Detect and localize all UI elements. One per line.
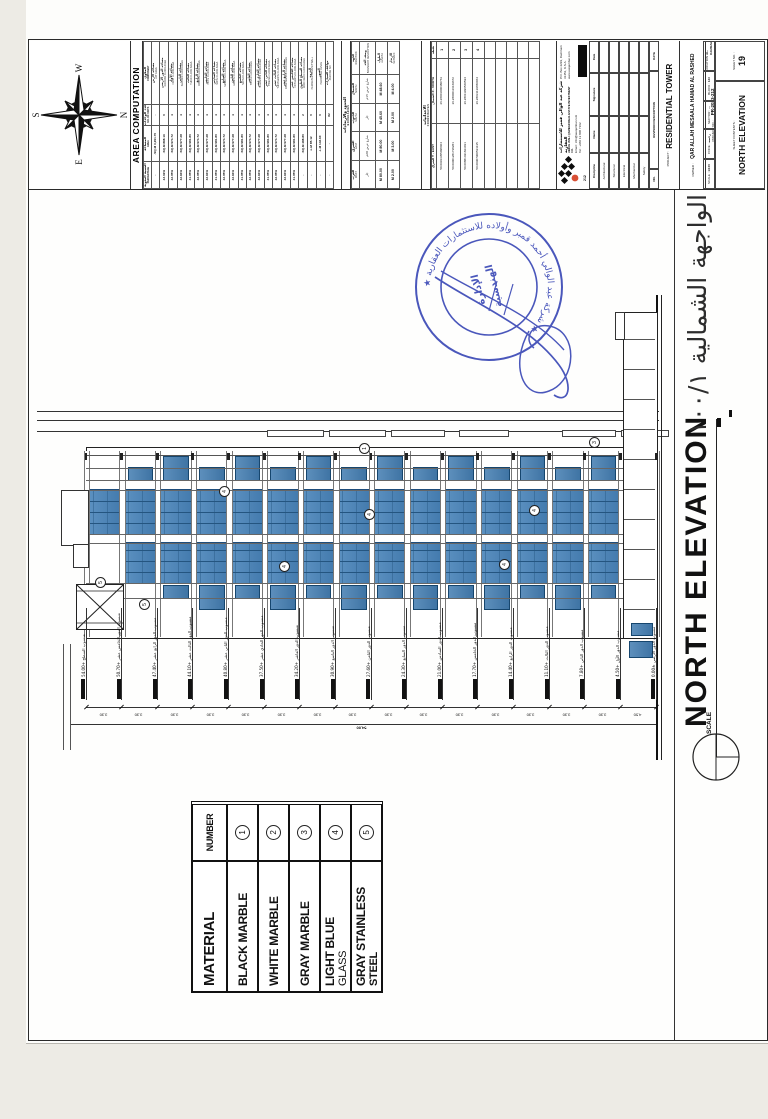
sheet-title: NORTH ELEVATION xyxy=(737,95,747,175)
slab-end-mark xyxy=(156,453,159,460)
entrance-glass xyxy=(629,641,653,658)
window-strip xyxy=(591,585,617,599)
slab-end-mark xyxy=(263,453,266,460)
area-table-row: مساحة الرابع عشرFOURTEENTH FLOOR AREA497… xyxy=(282,42,291,189)
signoff-empty-cell xyxy=(619,116,629,153)
slab-end-mark xyxy=(405,453,408,460)
signoff-row-label: Safety xyxy=(639,153,649,189)
window-strip xyxy=(448,585,474,599)
boundary-table-title: الحدود والارتدادات BOUNDARIES xyxy=(341,41,351,189)
company-name-arabic: شركة عبد الوالي قمبر للاستثمارات العقاري… xyxy=(558,81,568,153)
level-extension-line xyxy=(335,608,336,700)
floor-dimension: 3.30 xyxy=(274,713,288,718)
level-marker xyxy=(224,679,228,699)
sheet-no: 19 xyxy=(737,56,747,66)
window-strip xyxy=(270,467,296,481)
glass-module xyxy=(374,489,406,535)
slab-end-mark xyxy=(583,453,586,460)
area-table-row: مساحة الدور الأرضيGROUND FLOOR AREA0898.… xyxy=(160,42,169,189)
material-tag: 4 xyxy=(219,486,230,497)
floor-dimension: 3.30 xyxy=(168,713,182,718)
glass-module xyxy=(374,542,406,584)
level-annotation: منسوب الدور السابع +24.30 xyxy=(401,607,406,677)
fence-segment xyxy=(562,431,616,438)
signoff-empty-cell xyxy=(599,116,609,153)
floor-dimension: 3.30 xyxy=(239,713,253,718)
glass-module xyxy=(196,542,228,584)
company-header: 212 شركة عبد الوالي قمبر للاستثمارات الع… xyxy=(556,41,590,189)
level-marker xyxy=(331,679,335,699)
signoff-header: Discipline xyxy=(589,153,599,189)
coords-row: 126.2800100048076150.09913355098404 xyxy=(436,42,448,189)
podium xyxy=(623,312,658,639)
location-label: LOCATION : xyxy=(705,56,713,71)
project-name: RESIDENTIAL TOWER xyxy=(665,64,674,149)
slab-end-mark xyxy=(476,453,479,460)
contents-row: SHEET CONTENTS : NORTH ELEVATION SHEET N… xyxy=(715,41,765,189)
level-extension-line xyxy=(264,608,265,700)
area-table-row: مساحة الخامس عشرFIFTEENTH FLOOR AREA4981… xyxy=(290,42,299,189)
podium-division xyxy=(624,579,655,580)
company-logo-number: 212 xyxy=(583,175,587,181)
signoff-empty-cell xyxy=(639,116,649,153)
scale-label: SCALE : xyxy=(707,172,711,184)
roof-parapet xyxy=(61,490,89,546)
compass-letter-left: E xyxy=(74,159,84,165)
compass-rose-icon: S N E W xyxy=(29,41,130,189)
slab-end-mark xyxy=(298,453,301,460)
window-strip xyxy=(341,467,367,481)
area-table-row: الدروةPERIMETER PARAPET WALL085.12 L.M.- xyxy=(308,42,317,189)
dim-extension-line xyxy=(70,644,71,750)
floor-dimension: 3.30 xyxy=(132,713,146,718)
compass-cell: S N E W xyxy=(29,41,131,189)
level-extension-line xyxy=(228,608,229,700)
signoff-header: Name xyxy=(589,116,599,153)
window-strip xyxy=(235,585,261,599)
area-table-row: مساحة الثاني عشرTWELVE FLOOR AREA4981.80… xyxy=(264,42,273,189)
level-extension-line xyxy=(442,608,443,700)
glass-module xyxy=(89,489,121,535)
slab-end-mark xyxy=(85,453,88,460)
area-table-row: مساحة الأرضLOT AREA-3,291.70 SQ.M.- xyxy=(151,42,160,189)
window-strip xyxy=(413,467,439,481)
owner-name: QAR ALLAH MESAALA HAMAD AL RASHED xyxy=(690,53,696,158)
level-extension-line xyxy=(192,608,193,700)
total-dimension: 54.00 xyxy=(353,726,371,731)
boundary-dir-row: الجهةDIRECTIONالشمالNORTHالجنوبSOUTHالشر… xyxy=(352,42,360,189)
area-table-row: مساحة الحادي عشرELEVENTH FLOOR AREA4977.… xyxy=(256,42,265,189)
glass-module xyxy=(445,489,477,535)
signoff-empty-cell xyxy=(609,41,619,73)
floor-dimension: 4.50 xyxy=(631,713,645,718)
level-marker xyxy=(438,679,442,699)
drawing-title-box: SCALE NORTH ELEVATION الواجهة الشمالية ١… xyxy=(674,190,766,1040)
slab-end-mark xyxy=(512,453,515,460)
revision-bar: NO.REVISION DESCRIPTIONDATE xyxy=(649,41,659,189)
signoff-empty-cell xyxy=(639,73,649,116)
area-table-row: مساحة الثالث عشرTHIRTEENTH FLOOR AREA497… xyxy=(273,42,282,189)
slab-end-mark xyxy=(191,453,194,460)
area-table-row: مساحة العاشرTENTH FLOOR AREA4974.72 SQ.M… xyxy=(247,42,256,189)
area-table: المكونCOMPONENTعدد الوحداتNO. OF UNITSال… xyxy=(143,41,334,189)
level-annotation: منسوب الدور الثالث عشر +44.10 xyxy=(187,607,192,677)
area-table-row: مساحة السطح العلويROOF DECK FLOOR AREA24… xyxy=(299,42,308,189)
glass-module xyxy=(160,489,192,535)
signoff-empty-cell xyxy=(599,73,609,116)
signoff-empty-cell xyxy=(619,41,629,73)
coordinates-table: الاحداثيات COORDINATES نقطةX - NORTH الش… xyxy=(421,41,557,189)
slab-end-mark xyxy=(334,453,337,460)
level-marker xyxy=(402,679,406,699)
elevation-title-arabic: الواجهة الشمالية ١٠٠/١ xyxy=(683,194,712,412)
location-value: AL-DAMMAM xyxy=(705,41,713,55)
material-tag: 4 xyxy=(364,509,375,520)
level-annotation: منسوب الدور الثالث +11.10 xyxy=(544,607,549,677)
signoff-empty-cell xyxy=(629,41,639,73)
area-table-row: مساحة السابعSEVENTH FLOOR AREA4974.72 SQ… xyxy=(221,42,230,189)
company-tel: Tel : +966 13 808 7162 xyxy=(579,81,583,153)
level-annotation: منسوب الدور الثاني +7.80 xyxy=(579,607,584,677)
fence-segment xyxy=(267,431,324,438)
glass-module xyxy=(160,542,192,584)
glass-module xyxy=(267,489,299,535)
signoff-empty-cell xyxy=(639,41,649,73)
level-extension-line xyxy=(299,608,300,700)
level-annotation: منسوب الدور الأرضي ±0.00 xyxy=(651,607,656,677)
level-marker xyxy=(260,679,264,699)
floor-dimension: 3.30 xyxy=(559,713,573,718)
level-marker xyxy=(81,679,85,699)
area-table-row: السورPERIMETER FENCE0146.60 L.M.- xyxy=(316,42,325,189)
glass-module xyxy=(410,542,442,584)
glass-module xyxy=(303,542,335,584)
scanned-drawing-page: { "compass": {"top":"S","bottom":"N","le… xyxy=(0,0,768,1119)
revision-bar-cell: REVISION DESCRIPTION xyxy=(649,71,659,169)
boundary-table-grid: الجهةDIRECTIONالشمالNORTHالجنوبSOUTHالشر… xyxy=(351,41,400,189)
level-extension-line xyxy=(513,608,514,700)
level-marker xyxy=(545,679,549,699)
floor-dimension: 3.30 xyxy=(96,713,110,718)
compass-letter-right: W xyxy=(74,63,84,72)
floor-dimension: 3.30 xyxy=(346,713,360,718)
area-table-title: AREA COMPUTATION xyxy=(130,41,143,189)
slab-end-mark xyxy=(120,453,123,460)
area-table-row: مساحة الخامسFIFTH FLOOR AREA4977.28 SQ.M… xyxy=(203,42,212,189)
level-annotation: منسوب الدور الرابع +14.40 xyxy=(508,607,513,677)
level-marker xyxy=(366,679,370,699)
level-extension-line xyxy=(157,608,158,700)
level-marker xyxy=(509,679,513,699)
floor-dimension: 3.30 xyxy=(417,713,431,718)
boundary-length-row: الطولLENGTH48.60 M45.60 M80.00 M80.00 M xyxy=(375,42,387,189)
facade-edge-line xyxy=(86,583,623,584)
area-computation-table: AREA COMPUTATION المكونCOMPONENTعدد الوح… xyxy=(130,41,342,189)
area-table-row: مساحة التاسعNINTH FLOOR AREA4981.80 SQ.M… xyxy=(238,42,247,189)
level-extension-line xyxy=(549,608,550,700)
level-extension-line xyxy=(121,608,122,700)
glass-module xyxy=(445,542,477,584)
slab-end-mark xyxy=(227,453,230,460)
level-marker xyxy=(153,679,157,699)
level-annotation: منسوب الدور الثاني عشر +40.80 xyxy=(223,607,228,677)
glass-module xyxy=(481,489,513,535)
area-table-row: مساحة الأولFIRST FLOOR AREA4974.72 SQ.M.… xyxy=(169,42,178,189)
area-table-row: مساحة الثالثTHIRD FLOOR AREA4981.80 SQ.M… xyxy=(186,42,195,189)
level-extension-line xyxy=(371,608,372,700)
signoff-empty-cell xyxy=(599,41,609,73)
level-annotation: منسوب الدور السادس +21.00 xyxy=(437,607,442,677)
material-tag: 1 xyxy=(359,443,370,454)
slab-end-mark xyxy=(370,453,373,460)
sector-value: --- xyxy=(707,106,711,109)
window-strip xyxy=(128,467,154,481)
level-marker xyxy=(295,679,299,699)
coords-table-grid: نقطةX - NORTH الشمالY - EAST الشرق126.28… xyxy=(431,41,540,189)
level-marker xyxy=(616,679,620,699)
level-extension-line xyxy=(477,608,478,700)
slab-end-mark xyxy=(441,453,444,460)
project-row: PROJECT : RESIDENTIAL TOWER xyxy=(659,41,680,189)
level-marker xyxy=(117,679,121,699)
podium-division xyxy=(624,549,655,550)
facade-edge-line xyxy=(86,468,623,469)
signoff-row-label: Electrical xyxy=(619,153,629,189)
level-annotation: منسوب الدور الرابع عشر +47.40 xyxy=(152,607,157,677)
level-extension-line xyxy=(656,608,657,700)
facade-edge-line xyxy=(86,543,623,544)
title-block: 212 شركة عبد الوالي قمبر للاستثمارات الع… xyxy=(556,41,765,189)
approval-stamp: ★ شركة عبد الوالي أحمد قمبر وأولاده للاس… xyxy=(407,187,597,427)
podium-division xyxy=(624,459,655,460)
area-table-row: مساحة السادسSIXTH FLOOR AREA4981.80 SQ.M… xyxy=(212,42,221,189)
signoff-empty-cell xyxy=(619,73,629,116)
stamp-center-text-1: الإدارة xyxy=(470,273,488,306)
code-label: CODE : xyxy=(707,144,711,154)
signoff-header: Signature xyxy=(589,73,599,116)
floor-dimension: 3.30 xyxy=(453,713,467,718)
level-extension-line xyxy=(584,608,585,700)
glass-module xyxy=(125,489,157,535)
slab-end-mark xyxy=(619,453,622,460)
level-annotation: منسوب الدور التاسع +30.90 xyxy=(330,607,335,677)
level-annotation: منسوب الدور العاشر +34.20 xyxy=(294,607,299,677)
fields-row: SCALE : 1/100 CODE : رخصة SECTOR : --- B… xyxy=(703,41,715,189)
podium-division xyxy=(624,399,655,400)
area-table-row: مساحة الثامنEIGHTH FLOOR AREA4977.28 SQ.… xyxy=(229,42,238,189)
signoff-empty-cell xyxy=(629,73,639,116)
facade-edge-line xyxy=(86,490,623,491)
block-value: 123 xyxy=(707,77,711,82)
glass-module xyxy=(588,542,620,584)
signoff-row-label: Mechanical xyxy=(629,153,639,189)
dim-extension-line xyxy=(63,644,64,750)
level-annotation: منسوب الدور الثامن +27.60 xyxy=(366,607,371,677)
compass-letter-bottom: N xyxy=(119,111,129,118)
boundary-table: الحدود والارتدادات BOUNDARIES الجهةDIREC… xyxy=(341,41,422,189)
glass-module xyxy=(552,542,584,584)
level-extension-line xyxy=(86,608,87,700)
signoff-header: Date xyxy=(589,41,599,73)
title-block-strip: S N E W AREA COMPUTATION المكونCOMPONENT… xyxy=(29,41,765,190)
level-annotation: منسوب السطح +54.00 xyxy=(81,607,86,677)
company-logo-icon xyxy=(558,156,584,186)
level-marker xyxy=(473,679,477,699)
material-tag: 3 xyxy=(589,437,600,448)
elevation-drawing: منسوب السطح +54.00منسوب الدور الخامس عشر… xyxy=(29,190,767,1040)
signoff-row-label: Architectural xyxy=(599,153,609,189)
podium-division xyxy=(624,519,655,520)
code-value: رخصة xyxy=(707,134,711,143)
window-strip xyxy=(555,467,581,481)
floor-dimension: 3.30 xyxy=(203,713,217,718)
material-tag: 5 xyxy=(139,599,150,610)
title-underline xyxy=(716,419,717,757)
level-marker xyxy=(651,679,655,699)
floor-dimension: 3.30 xyxy=(524,713,538,718)
floor-dimension: 3.30 xyxy=(595,713,609,718)
level-annotation: منسوب الدور الأول +4.50 xyxy=(615,607,620,677)
material-tag: 4 xyxy=(529,505,540,516)
facade-edge-line xyxy=(86,534,623,535)
facade-edge-line xyxy=(86,598,623,599)
floor-dimension: 3.30 xyxy=(488,713,502,718)
drawing-sheet: S N E W AREA COMPUTATION المكونCOMPONENT… xyxy=(28,39,768,1041)
slab-end-mark xyxy=(548,453,551,460)
revision-bar-cell: NO. xyxy=(649,169,659,189)
facade-edge-line xyxy=(86,480,623,481)
material-tag: 4 xyxy=(279,561,290,572)
project-label: PROJECT : xyxy=(667,151,671,167)
material-tag: 4 xyxy=(499,559,510,570)
signoff-empty-cell xyxy=(609,73,619,116)
glass-module xyxy=(338,542,370,584)
floor-dimension: 3.30 xyxy=(381,713,395,718)
owner-label: OWNER : xyxy=(691,163,695,176)
signoff-row-label: Structural xyxy=(609,153,619,189)
glass-module xyxy=(125,542,157,584)
signoff-grid: DisciplineNameSignatureDateArchitectural… xyxy=(589,41,649,189)
signoff-empty-cell xyxy=(629,116,639,153)
block-label: BLOCK : xyxy=(707,83,711,95)
coords-row: 326.2801199656059450.00881491823031 xyxy=(460,42,472,189)
podium-division xyxy=(624,429,655,430)
logo-bar xyxy=(578,45,587,77)
level-extension-line xyxy=(620,608,621,700)
coords-row: 226.2800011616967250.09001281738281 xyxy=(448,42,460,189)
glass-module xyxy=(588,489,620,535)
glass-module xyxy=(232,542,264,584)
level-extension-line xyxy=(406,608,407,700)
level-marker xyxy=(188,679,192,699)
compass-letter-top: S xyxy=(31,112,41,117)
podium-step xyxy=(615,312,625,340)
elevation-title: NORTH ELEVATION xyxy=(680,415,714,727)
scale-value: 1/100 xyxy=(707,164,711,172)
window-strip xyxy=(520,585,546,599)
area-table-row: مساحة الثانيSECOND FLOOR AREA4977.28 SQ.… xyxy=(177,42,186,189)
owner-row: OWNER : QAR ALLAH MESAALA HAMAD AL RASHE… xyxy=(679,41,706,189)
slab-end-mark xyxy=(655,453,658,460)
glass-module xyxy=(232,489,264,535)
window-strip xyxy=(306,585,332,599)
level-annotation: منسوب الدور الخامس +17.70 xyxy=(472,607,477,677)
podium-division xyxy=(624,489,655,490)
window-strip xyxy=(163,585,189,599)
floor-dimension: 3.30 xyxy=(310,713,324,718)
podium-division xyxy=(624,339,655,340)
roof-parapet-step xyxy=(73,544,89,568)
window-strip xyxy=(199,467,225,481)
window-strip xyxy=(484,467,510,481)
glass-module xyxy=(410,489,442,535)
ground-line xyxy=(661,295,662,760)
level-annotation: منسوب الدور الخامس عشر +50.70 xyxy=(116,607,121,677)
material-tag: 5 xyxy=(95,577,106,588)
fence-segment xyxy=(391,431,445,438)
area-table-row: مواقف السياراتPARKING NO.82-- xyxy=(325,42,334,189)
boundary-setback-row: الارتدادSETBACK4.00 M2.00 M3.00 M2.00 M xyxy=(387,42,399,189)
coords-row: 426.2803113965006450.00907900531135 xyxy=(472,42,484,189)
level-annotation: منسوب الدور الحادي عشر +37.50 xyxy=(259,607,264,677)
fence-segment xyxy=(329,431,386,438)
revision-bar-cell: DATE xyxy=(649,41,659,71)
level-marker xyxy=(580,679,584,699)
company-web: www.awqambar.com xyxy=(568,43,572,79)
dim-chain-right xyxy=(86,456,622,457)
window-strip xyxy=(377,585,403,599)
glass-module xyxy=(517,542,549,584)
area-table-row: مساحة الرابعFOURTH FLOOR AREA4974.72 SQ.… xyxy=(195,42,204,189)
coords-table-title: الاحداثيات COORDINATES xyxy=(421,41,431,189)
boundary-desc-row: وصف الحدBOUNDARY DESCRIPTIONشارع عرض 15م… xyxy=(359,42,375,189)
glass-module xyxy=(552,489,584,535)
podium-division xyxy=(624,369,655,370)
signoff-empty-cell xyxy=(609,116,619,153)
glass-module xyxy=(303,489,335,535)
sector-label: SECTOR : xyxy=(707,110,711,124)
fence-segment xyxy=(459,431,509,438)
